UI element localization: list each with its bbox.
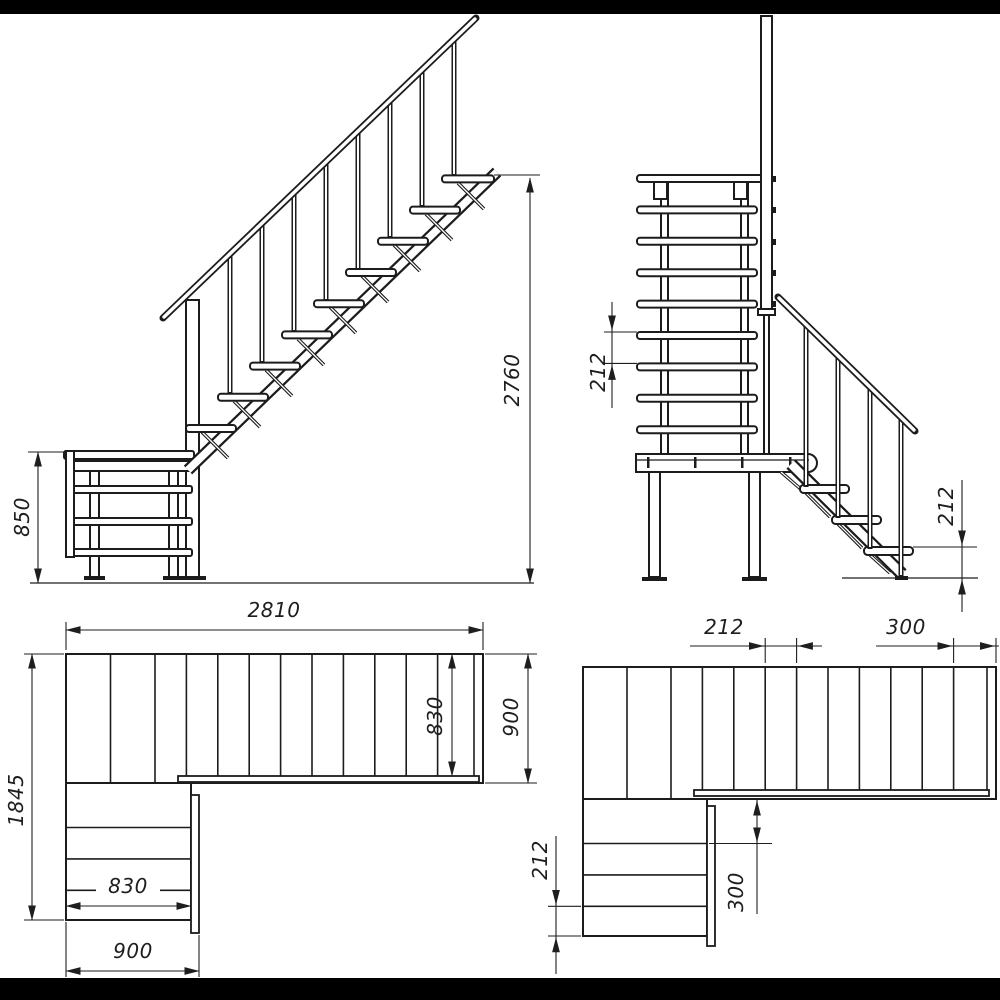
dim-label-212-upper: 212	[586, 352, 610, 392]
dim-label-850: 850	[10, 497, 34, 537]
drawing-page: 850 2760	[0, 0, 1000, 1000]
front-treads	[637, 175, 763, 433]
dim-label-830-upper: 830	[423, 696, 447, 736]
dim-label-1845: 1845	[4, 774, 28, 827]
plan-stringer-upper	[178, 776, 479, 782]
plan-stringer-upper-2	[694, 790, 989, 796]
dim-label-2810: 2810	[248, 598, 301, 622]
letterbox-top	[0, 0, 1000, 14]
upper-flight-plan-2	[583, 667, 996, 799]
dim-label-300-mid: 300	[724, 872, 748, 912]
dim-label-300-top: 300	[886, 615, 926, 639]
lower-flight-plan	[66, 783, 191, 920]
plan-stringer-lower-2	[707, 806, 715, 946]
dim-label-830-lower: 830	[108, 874, 148, 898]
dim-label-212-top: 212	[704, 615, 744, 639]
dim-label-2760: 2760	[500, 354, 524, 407]
letterbox-bottom	[0, 978, 1000, 1000]
lower-flight-plan-2	[583, 799, 707, 936]
staircase-drawing: 850 2760	[0, 0, 1000, 1000]
plan-stringer-lower	[191, 795, 199, 933]
upper-flight-plan	[66, 654, 483, 783]
corner-post	[186, 300, 199, 578]
dim-label-212-lower: 212	[934, 486, 958, 526]
dim-label-212-left: 212	[528, 840, 552, 880]
dim-label-900-upper: 900	[499, 697, 523, 737]
dim-label-900-lower: 900	[113, 939, 153, 963]
